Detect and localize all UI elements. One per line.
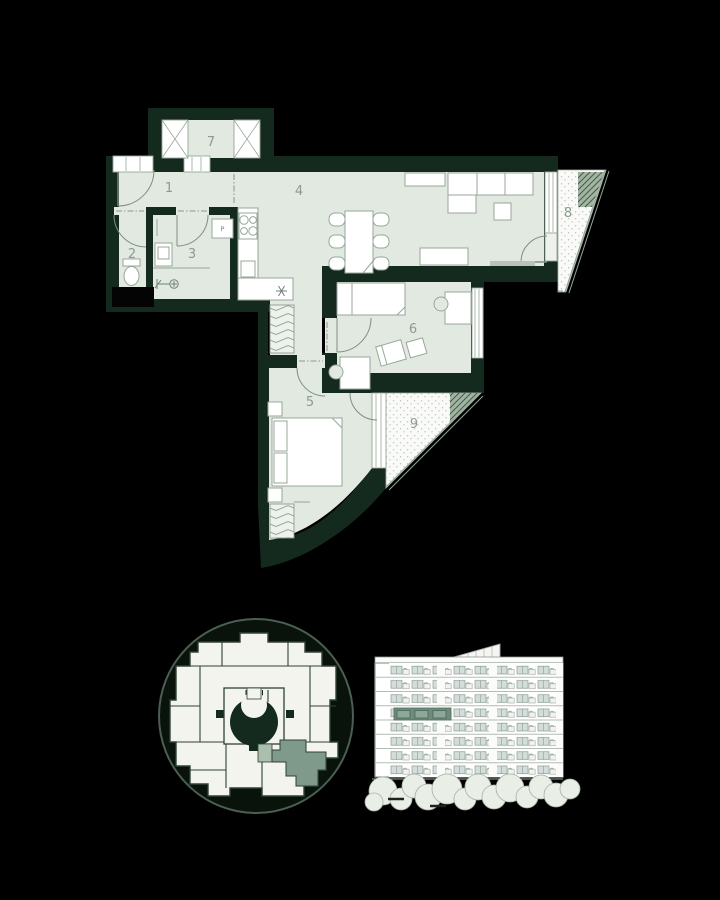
highlighted-unit: [394, 708, 451, 720]
room-label-5: 5: [306, 395, 314, 410]
room-label-7: 7: [207, 135, 215, 150]
burner: [240, 216, 248, 224]
wardrobe: [270, 504, 294, 538]
sink: [241, 261, 255, 277]
toilet: [123, 259, 140, 286]
planting-hatch: [578, 172, 604, 207]
pillow: [274, 453, 287, 483]
single-bed: [337, 283, 405, 315]
adjacent-unit-highlight: [258, 744, 272, 762]
room-label-4: 4: [295, 184, 303, 199]
entrance-door-opening: [113, 156, 153, 172]
washing-machine-label: P: [221, 225, 225, 233]
balcony-door-8: [545, 233, 557, 261]
nightstand: [268, 488, 282, 502]
room-label-3: 3: [188, 247, 196, 262]
double-bed: [272, 418, 342, 486]
floor-overview-minimap: [159, 619, 353, 813]
shaft-void: [112, 287, 154, 307]
room-label-2: 2: [128, 247, 136, 262]
trees: [365, 774, 580, 811]
room-6-window: [472, 288, 483, 358]
balcony-door-9: [372, 393, 386, 468]
coffee-table: [494, 203, 511, 220]
room-label-6: 6: [409, 322, 417, 337]
parapet: [375, 657, 563, 663]
room-label-8: 8: [564, 206, 572, 221]
washbasin: [155, 243, 172, 266]
nightstand: [268, 402, 282, 416]
page: 1 2 3 4 5 6 7 8 9 P: [0, 0, 720, 900]
tv: [490, 261, 535, 266]
room-label-1: 1: [165, 181, 173, 196]
balcony-9: [386, 393, 483, 490]
tv-stand: [420, 248, 468, 265]
dining-table: [345, 211, 373, 273]
building-elevation: [365, 644, 580, 811]
pillow: [274, 421, 287, 451]
floor-plan: 1 2 3 4 5 6 7 8 9 P: [106, 108, 609, 568]
sideboard: [405, 173, 445, 186]
central-core: [224, 688, 284, 746]
wardrobe: [270, 305, 294, 353]
balcony-8: [558, 170, 609, 293]
living-room-window: [545, 172, 557, 233]
architectural-drawing: 1 2 3 4 5 6 7 8 9 P: [0, 0, 720, 900]
room-label-9: 9: [410, 417, 418, 432]
